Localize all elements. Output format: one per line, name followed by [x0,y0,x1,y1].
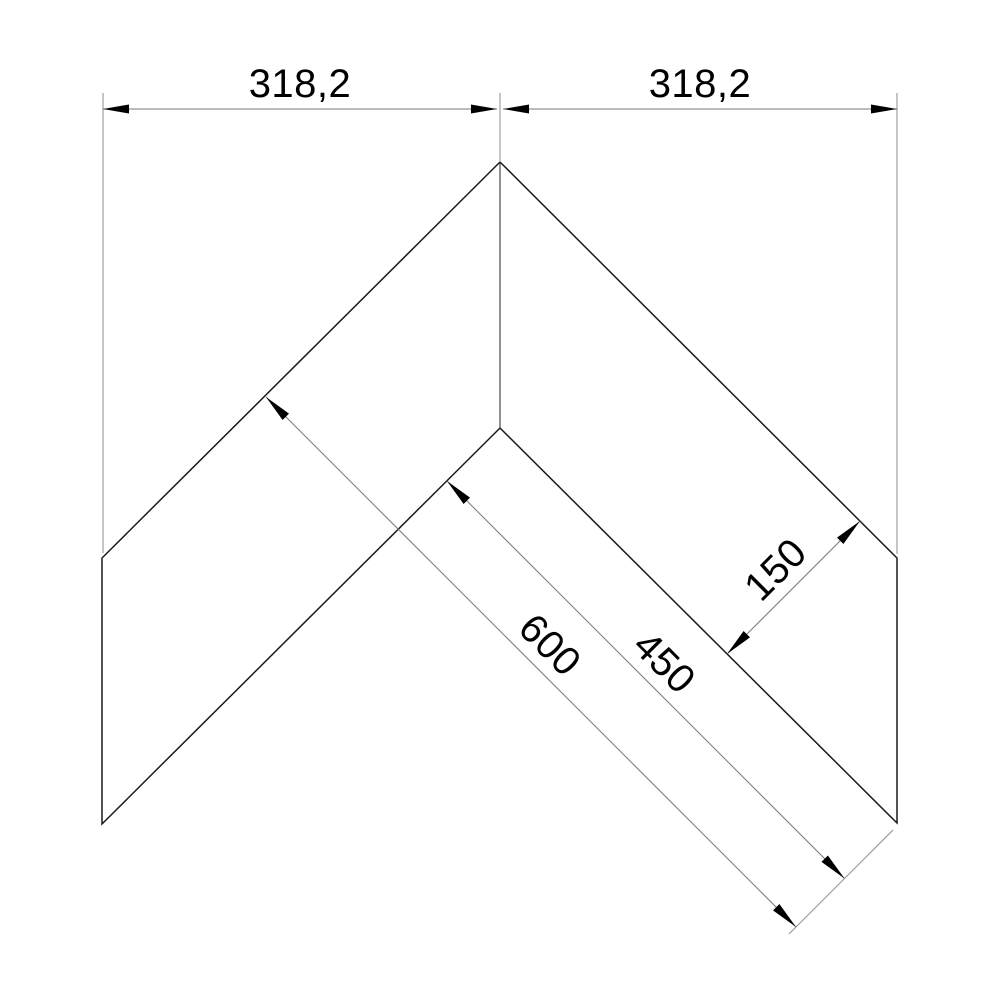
dimension-value: 600 [510,606,589,685]
dimension-top-right: 318,2 [503,62,897,554]
arrowhead-lower-icon [727,631,750,654]
dimension-top-left: 318,2 [103,62,500,553]
arrowhead-right-icon [471,105,497,114]
arrowhead-upper-icon [837,521,860,544]
end-cut-extension [789,830,893,934]
technical-drawing: 318,2 318,2 150 450 6 [0,0,1000,1000]
dimension-outer-600: 600 [266,397,796,927]
arrowhead-left-icon [503,105,529,114]
extension-line-end-cut [789,830,893,934]
dimension-value: 450 [625,623,704,702]
cad-drawing-canvas: 318,2 318,2 150 450 6 [0,0,1000,1000]
arrowhead-right-icon [871,105,897,114]
dimension-value: 150 [736,530,815,609]
part-outline [102,162,897,824]
dimension-value: 318,2 [249,62,352,106]
dimension-value: 318,2 [649,62,752,106]
arrowhead-end-icon [822,856,845,879]
dimension-width-150: 150 [727,521,860,654]
arrowhead-end-icon [773,904,796,927]
arrowhead-start-icon [266,397,289,420]
arrowhead-start-icon [447,481,470,504]
arrowhead-left-icon [103,105,129,114]
dimension-line [266,397,796,927]
